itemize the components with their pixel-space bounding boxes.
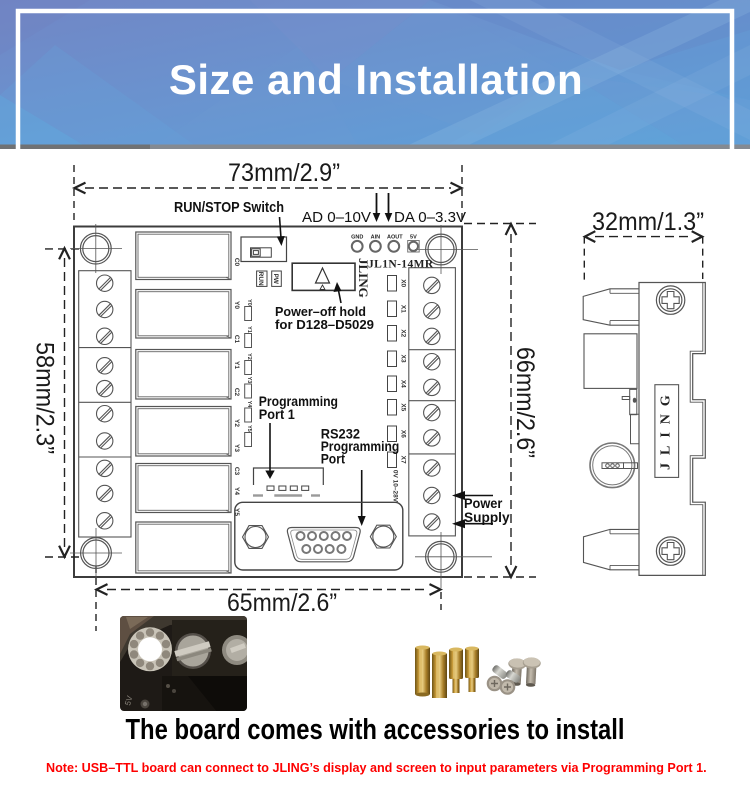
svg-text:X6: X6 (400, 430, 407, 438)
svg-text:Y5: Y5 (246, 425, 252, 432)
svg-text:Power–off hold: Power–off hold (275, 305, 366, 319)
svg-text:Y4: Y4 (233, 487, 240, 495)
svg-text:Y3: Y3 (246, 377, 252, 384)
svg-text:X4: X4 (400, 380, 407, 388)
svg-text:for D128–D5029: for D128–D5029 (275, 318, 374, 332)
svg-text:Y3: Y3 (233, 444, 240, 452)
svg-text:Y5: Y5 (233, 508, 240, 516)
svg-text:DA 0–3.3V: DA 0–3.3V (394, 209, 466, 226)
svg-text:X0: X0 (400, 279, 407, 287)
svg-text:66mm/2.6”: 66mm/2.6” (511, 347, 539, 458)
svg-text:58mm/2.3”: 58mm/2.3” (31, 342, 59, 454)
svg-text:JLING: JLING (659, 387, 674, 470)
svg-text:X3: X3 (400, 355, 407, 363)
svg-text:C3: C3 (233, 467, 240, 476)
svg-text:Y1: Y1 (233, 361, 240, 369)
svg-text:X7: X7 (400, 456, 407, 464)
svg-text:Y2: Y2 (233, 419, 240, 427)
svg-text:RUN/STOP Switch: RUN/STOP Switch (174, 199, 284, 216)
svg-text:X1: X1 (400, 305, 407, 313)
svg-text:JL1N-14MR: JL1N-14MR (368, 259, 434, 271)
svg-text:Y2: Y2 (246, 353, 252, 360)
svg-text:73mm/2.9”: 73mm/2.9” (228, 159, 340, 187)
svg-text:JLING: JLING (356, 258, 371, 298)
svg-text:PW: PW (272, 273, 279, 284)
svg-text:Supply: Supply (464, 510, 510, 525)
svg-text:65mm/2.6”: 65mm/2.6” (227, 589, 337, 617)
svg-text:RUN: RUN (257, 272, 264, 286)
svg-text:AOUT: AOUT (387, 235, 403, 241)
svg-text:Port 1: Port 1 (259, 406, 295, 422)
svg-text:Y0: Y0 (233, 301, 240, 309)
svg-text:X2: X2 (400, 329, 407, 337)
svg-text:Y0: Y0 (246, 299, 252, 306)
svg-text:C1: C1 (233, 335, 240, 344)
svg-text:5V: 5V (410, 235, 417, 241)
svg-text:AIN: AIN (371, 235, 381, 241)
svg-text:C2: C2 (233, 388, 240, 397)
svg-text:32mm/1.3”: 32mm/1.3” (592, 208, 704, 236)
svg-text:Y1: Y1 (246, 326, 252, 333)
svg-text:0V 10–28V: 0V 10–28V (392, 470, 399, 503)
svg-text:Y4: Y4 (246, 401, 252, 409)
svg-text:C0: C0 (233, 258, 240, 267)
svg-text:AD 0–10V: AD 0–10V (302, 209, 371, 226)
svg-text:X5: X5 (400, 403, 407, 411)
svg-text:Power: Power (464, 496, 503, 511)
svg-text:GND: GND (351, 235, 363, 241)
svg-text:Port: Port (321, 450, 346, 466)
svg-text:The board comes with accessori: The board comes with accessories to inst… (126, 714, 625, 746)
